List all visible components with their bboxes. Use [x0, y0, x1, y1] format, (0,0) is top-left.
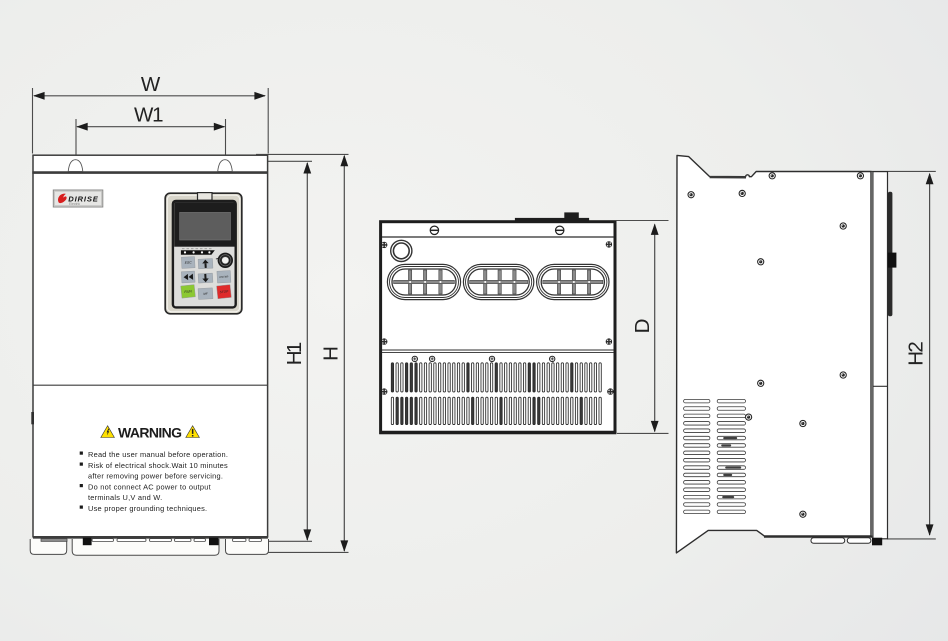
svg-text:RUN: RUN [184, 289, 192, 294]
svg-text:Read the user manual before op: Read the user manual before operation. [88, 450, 228, 459]
svg-text:ENTER: ENTER [219, 275, 228, 279]
svg-text:terminals U,V and W.: terminals U,V and W. [88, 493, 162, 502]
svg-text:Risk of electrical shock.Wait: Risk of electrical shock.Wait 10 minutes [88, 461, 228, 470]
svg-text:Use proper grounding technique: Use proper grounding techniques. [88, 504, 207, 513]
svg-text:W1: W1 [134, 104, 164, 127]
svg-text:H2: H2 [905, 341, 928, 366]
svg-text:Electric: Electric [69, 202, 80, 206]
svg-text:W: W [141, 73, 161, 96]
svg-text:WARNING: WARNING [118, 424, 182, 440]
svg-text:ESC: ESC [185, 261, 193, 265]
svg-text:H1: H1 [283, 342, 306, 366]
svg-text:MF: MF [203, 292, 208, 296]
svg-text:Do not connect AC power to out: Do not connect AC power to output [88, 482, 211, 491]
svg-text:after removing power before se: after removing power before servicing. [88, 471, 223, 480]
svg-text:D: D [631, 319, 654, 334]
svg-text:H: H [319, 346, 342, 361]
